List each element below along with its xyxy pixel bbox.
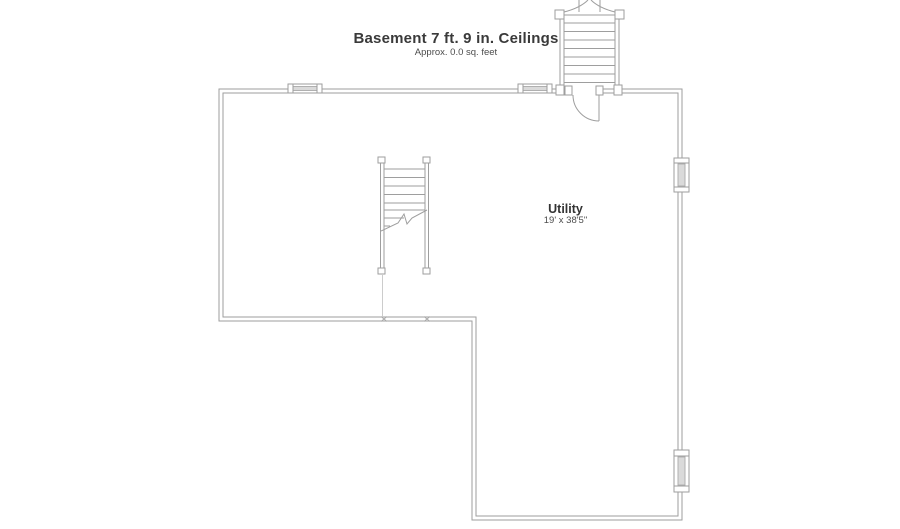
page-subtitle: Approx. 0.0 sq. feet <box>300 48 612 59</box>
floorplan-canvas: Basement 7 ft. 9 in. Ceilings Approx. 0.… <box>0 0 900 529</box>
right-wall-window-lower <box>674 450 689 492</box>
interior-staircase <box>378 157 430 322</box>
exterior-walls <box>219 89 682 520</box>
floorplan-drawing <box>0 0 900 529</box>
top-wall-window-left <box>288 84 322 93</box>
page-title: Basement 7 ft. 9 in. Ceilings <box>300 30 612 47</box>
top-wall-window-right <box>518 84 552 93</box>
interior-stair-treads <box>384 169 425 226</box>
bulkhead-doors-icon <box>564 0 615 12</box>
room-dimensions: 19' x 38'5" <box>490 216 641 227</box>
right-wall-window-upper <box>674 158 689 192</box>
stair-break-line <box>381 210 427 231</box>
